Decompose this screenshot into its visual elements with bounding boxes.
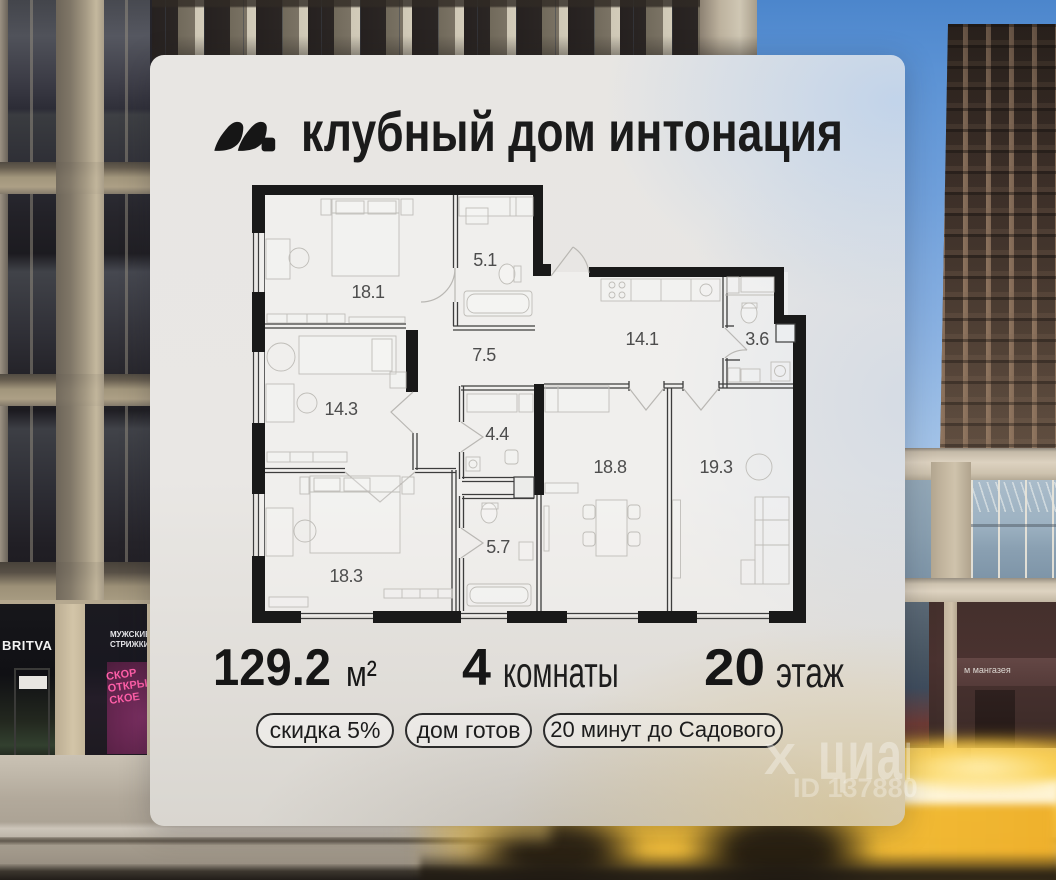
svg-text:14.3: 14.3: [324, 399, 358, 419]
svg-text:3.6: 3.6: [745, 329, 769, 349]
svg-text:18.8: 18.8: [593, 457, 627, 477]
svg-text:5.7: 5.7: [486, 537, 510, 557]
svg-text:19.3: 19.3: [699, 457, 733, 477]
svg-text:18.3: 18.3: [329, 566, 363, 586]
svg-text:4.4: 4.4: [485, 424, 509, 444]
svg-text:5.1: 5.1: [473, 250, 497, 270]
svg-text:14.1: 14.1: [625, 329, 659, 349]
svg-text:18.1: 18.1: [351, 282, 385, 302]
svg-text:7.5: 7.5: [472, 345, 496, 365]
